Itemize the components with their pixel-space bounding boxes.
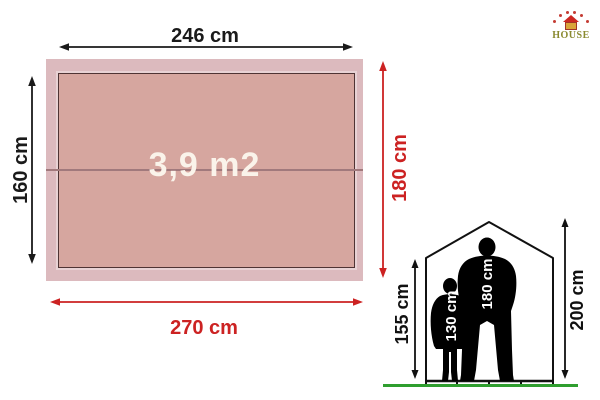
logo-arc-dot-icon bbox=[573, 11, 576, 14]
arrowhead-down-icon bbox=[412, 370, 419, 379]
dim-arrow-outer-width: 270 cm bbox=[50, 298, 363, 339]
arrowhead-left-icon bbox=[50, 298, 60, 306]
logo-arc-dot-icon bbox=[586, 20, 589, 23]
dim-arrow-outer-depth: 180 cm bbox=[379, 61, 411, 278]
logo-body-icon bbox=[565, 22, 577, 30]
adult-height-label: 180 cm bbox=[479, 259, 496, 310]
logo: HOUSE bbox=[549, 10, 593, 44]
inner-width-label: 246 cm bbox=[171, 25, 239, 47]
dim-arrow-ridge-height: 200 cm bbox=[562, 218, 588, 379]
elevation-group: 130 cm 180 cm 155 cm 200 cm bbox=[383, 218, 587, 386]
inner-depth-label: 160 cm bbox=[10, 136, 32, 204]
arrowhead-up-icon bbox=[412, 259, 419, 268]
logo-arc-dot-icon bbox=[559, 14, 562, 17]
dim-arrow-inner-depth: 160 cm bbox=[10, 76, 36, 264]
outer-depth-label: 180 cm bbox=[389, 134, 411, 202]
logo-house-icon bbox=[563, 15, 579, 29]
diagram-canvas: 3,9 m2 246 cm 160 cm 180 cm bbox=[0, 0, 600, 400]
dimension-overlay: 246 cm 160 cm 180 cm 270 cm bbox=[0, 0, 600, 400]
arrowhead-left-icon bbox=[59, 43, 69, 51]
arrowhead-up-icon bbox=[562, 218, 569, 227]
arrowhead-right-icon bbox=[343, 43, 353, 51]
arrowhead-up-icon bbox=[28, 76, 36, 86]
arrowhead-right-icon bbox=[353, 298, 363, 306]
logo-roof-icon bbox=[563, 15, 579, 22]
logo-arc-dot-icon bbox=[580, 14, 583, 17]
arrowhead-up-icon bbox=[379, 61, 387, 71]
child-height-label: 130 cm bbox=[443, 291, 460, 342]
arrowhead-down-icon bbox=[28, 254, 36, 264]
arrowhead-down-icon bbox=[562, 370, 569, 379]
dim-arrow-inner-width: 246 cm bbox=[59, 25, 353, 51]
logo-brand: HOUSE bbox=[549, 30, 593, 41]
logo-arc-dot-icon bbox=[566, 11, 569, 14]
logo-arc-dot-icon bbox=[553, 20, 556, 23]
outer-width-label: 270 cm bbox=[170, 317, 238, 339]
dim-arrow-wall-height: 155 cm bbox=[392, 259, 419, 379]
arrowhead-down-icon bbox=[379, 268, 387, 278]
ridge-height-label: 200 cm bbox=[567, 269, 587, 330]
wall-height-label: 155 cm bbox=[392, 283, 412, 344]
